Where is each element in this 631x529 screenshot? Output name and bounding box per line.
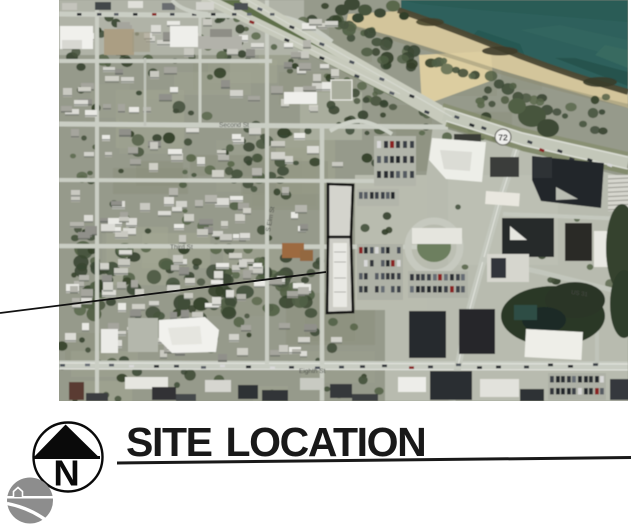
svg-text:N: N (53, 453, 79, 494)
svg-text:Second St: Second St (219, 122, 249, 129)
svg-text:Third St: Third St (170, 244, 193, 251)
svg-text:72: 72 (498, 133, 508, 143)
svg-text:Eighth St: Eighth St (299, 368, 326, 375)
svg-text:SITE LOCATION: SITE LOCATION (126, 419, 425, 465)
